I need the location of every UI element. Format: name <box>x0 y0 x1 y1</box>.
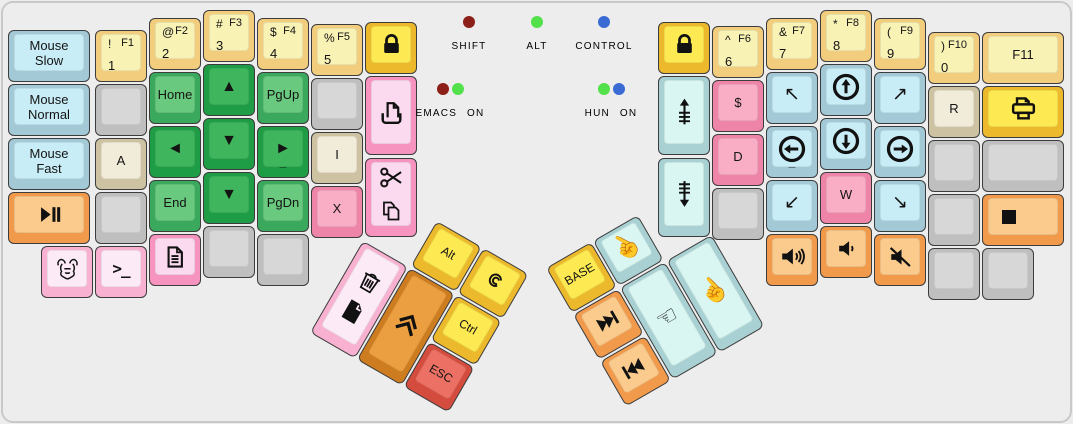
key-flabel: F7 <box>792 25 805 37</box>
chevrons-icon <box>387 303 428 345</box>
key-label: F11 <box>989 37 1057 72</box>
key-legend: ^ <box>725 33 731 47</box>
file-black-icon <box>334 293 371 330</box>
emacs-indicator: EMACS ON <box>380 83 520 119</box>
key-media-stop[interactable] <box>982 194 1064 246</box>
document-icon <box>161 243 189 271</box>
key-legend: ( <box>887 25 891 39</box>
key-d[interactable]: D <box>712 134 764 186</box>
key-icon-area <box>989 199 1057 234</box>
key-icon-area <box>827 231 865 266</box>
key-flabel: F3 <box>229 17 242 29</box>
key-mouse-up-left[interactable]: ↖ <box>766 72 818 124</box>
key-mouse-down-right[interactable]: ↘ <box>874 180 926 232</box>
key-mouse-slow[interactable]: Mouse Slow <box>8 30 90 82</box>
key-f10-0[interactable]: )F100 <box>928 32 980 84</box>
key-f1-1[interactable]: !F11 <box>95 30 147 82</box>
key-icon-area <box>827 123 865 158</box>
key-legend: 7 <box>779 46 786 61</box>
key-f11[interactable]: F11 <box>982 32 1064 84</box>
key-f7-7[interactable]: &F77 <box>766 18 818 70</box>
key-circle-left-key[interactable]: _ <box>766 126 818 178</box>
hand-up-icon: ☝ <box>609 231 645 263</box>
key-label: Home <box>156 77 194 112</box>
key-legend: % <box>324 31 335 45</box>
copy-icon <box>378 198 404 224</box>
key-pgdn[interactable]: PgDn <box>257 180 309 232</box>
key-volume-up[interactable] <box>766 234 818 286</box>
key-cut-copy[interactable] <box>365 158 417 237</box>
key-label: PgUp <box>264 77 302 112</box>
key-legend: & <box>779 25 787 39</box>
key-label: A <box>102 143 140 178</box>
key-label: ▼ <box>210 123 248 158</box>
hand-up-2-icon: ☝ <box>696 275 732 307</box>
key-blank[interactable] <box>95 84 147 136</box>
control-indicator: CONTROL <box>534 16 674 52</box>
keyboard-layout-canvas: Mouse SlowMouse NormalMouse Fast!F11A>_@… <box>0 0 1073 424</box>
key-print[interactable] <box>982 86 1064 138</box>
key-flabel: F6 <box>738 33 751 45</box>
key-i[interactable]: I <box>311 132 363 184</box>
key-label: W <box>827 177 865 212</box>
key-flabel: F8 <box>846 17 859 29</box>
key-mouse-fast[interactable]: Mouse Fast <box>8 138 90 190</box>
key-label: D <box>719 139 757 174</box>
led-dots <box>380 83 520 95</box>
skip-next-icon <box>590 305 624 338</box>
key-flabel: F9 <box>900 25 913 37</box>
key-icon-area <box>470 256 520 305</box>
key-legend: 8 <box>833 38 840 53</box>
key-flabel: F1 <box>121 37 134 49</box>
key-dollar[interactable]: $ <box>712 80 764 132</box>
key-label: Alt <box>423 229 473 278</box>
key-legend: 5 <box>324 52 331 67</box>
key-end[interactable]: End <box>149 180 201 232</box>
key-circle-down-key[interactable] <box>820 118 872 170</box>
circle-up-icon <box>831 72 861 102</box>
vol-mute-icon <box>886 243 914 271</box>
key-mouse-down-left[interactable]: ↙ <box>766 180 818 232</box>
gnu-icon <box>54 255 81 282</box>
green-led-dot <box>598 83 610 95</box>
key-legend: 4 <box>270 46 277 61</box>
blue-led-dot <box>613 83 625 95</box>
key-front-legend: _ <box>264 158 302 166</box>
key-volume-down[interactable] <box>820 226 872 278</box>
key-flabel: F2 <box>175 25 188 37</box>
key-flabel: F4 <box>283 25 296 37</box>
key-icon-area <box>156 239 194 274</box>
key-icon-area <box>881 239 919 274</box>
key-icon-area <box>881 131 919 166</box>
key-circle-right-key[interactable] <box>874 126 926 178</box>
key-flabel: F10 <box>948 39 967 51</box>
key-f5-5[interactable]: %F55 <box>311 24 363 76</box>
key-icon-area <box>773 239 811 274</box>
key-legend: 9 <box>887 46 894 61</box>
led-dots <box>541 83 681 95</box>
led-dots <box>534 16 674 28</box>
indicator-label: EMACS ON <box>380 108 520 119</box>
stop-icon <box>1002 210 1044 224</box>
key-legend: 6 <box>725 54 732 69</box>
key-blank[interactable] <box>928 194 980 246</box>
key-home[interactable]: Home <box>149 72 201 124</box>
circle-right-icon <box>885 134 915 164</box>
key-legend: ! <box>108 37 111 51</box>
key-label: Mouse Slow <box>15 35 83 70</box>
skip-prev-icon <box>617 351 651 384</box>
key-volume-mute[interactable] <box>874 234 926 286</box>
blue-led-dot <box>598 16 610 28</box>
key-blank[interactable] <box>928 140 980 192</box>
key-label: Mouse Fast <box>15 143 83 178</box>
key-legend: 2 <box>162 46 169 61</box>
key-label: End <box>156 185 194 220</box>
key-flabel: F5 <box>337 31 350 43</box>
hun-indicator: HUN ON <box>541 83 681 119</box>
key-blank[interactable] <box>712 188 764 240</box>
key-blank[interactable] <box>311 78 363 130</box>
trash-icon <box>351 263 388 300</box>
key-blank[interactable] <box>203 226 255 278</box>
key-arrow-up[interactable]: ▲ <box>203 64 255 116</box>
scroll-down-icon <box>674 179 695 208</box>
key-label: $ <box>719 85 757 120</box>
key-f2-2[interactable]: @F22 <box>149 18 201 70</box>
key-label: Ctrl <box>443 303 493 352</box>
key-label: ↘ <box>881 185 919 220</box>
key-scroll-down[interactable] <box>658 158 710 237</box>
key-a[interactable]: A <box>95 138 147 190</box>
key-label: I <box>318 137 356 172</box>
lock-icon <box>672 32 697 57</box>
key-legend: $ <box>270 25 277 39</box>
key-label: ↖ <box>773 77 811 112</box>
key-x[interactable]: X <box>311 186 363 238</box>
key-label: BASE <box>555 250 605 299</box>
key-blank[interactable] <box>257 234 309 286</box>
key-arrow-left[interactable]: ◄ <box>149 126 201 178</box>
key-icon-area <box>48 251 86 286</box>
key-front-legend: _ <box>773 158 811 166</box>
key-gnu[interactable] <box>41 246 93 298</box>
cut-icon <box>378 164 405 191</box>
key-terminal[interactable]: >_ <box>95 246 147 298</box>
key-f6-6[interactable]: ^F66 <box>712 26 764 78</box>
key-label: ↙ <box>773 185 811 220</box>
red-led-dot <box>437 83 449 95</box>
key-arrow-down-2[interactable]: ▼ <box>203 172 255 224</box>
terminal-icon: >_ <box>112 261 129 276</box>
key-legend: ) <box>941 39 945 53</box>
key-icon-area: ☝ <box>601 223 651 272</box>
key-label: ▲ <box>210 69 248 104</box>
key-label: PgDn <box>264 185 302 220</box>
key-legend: * <box>833 17 838 31</box>
key-f4-4[interactable]: $F44 <box>257 18 309 70</box>
key-label: ↗ <box>881 77 919 112</box>
key-circle-up-key[interactable] <box>820 64 872 116</box>
key-icon-area <box>665 163 703 225</box>
key-r[interactable]: R <box>928 86 980 138</box>
key-f3-3[interactable]: #F33 <box>203 10 255 62</box>
print-icon <box>1008 93 1039 124</box>
key-blank[interactable] <box>95 192 147 244</box>
key-legend: 3 <box>216 38 223 53</box>
key-legend: 0 <box>941 60 948 75</box>
key-icon-area <box>372 163 410 225</box>
key-document[interactable] <box>149 234 201 286</box>
key-legend: # <box>216 17 223 31</box>
key-blank[interactable] <box>982 140 1064 192</box>
key-blank[interactable] <box>982 248 1034 300</box>
vol-down-icon <box>833 235 860 262</box>
key-pgup[interactable]: PgUp <box>257 72 309 124</box>
key-icon-area: >_ <box>102 251 140 286</box>
key-icon-area <box>609 343 659 392</box>
key-w[interactable]: W <box>820 172 872 224</box>
vol-up-icon <box>778 242 807 271</box>
debian-icon <box>476 262 513 299</box>
key-icon-area <box>989 91 1057 126</box>
key-arrow-down[interactable]: ▼ <box>203 118 255 170</box>
key-arrow-right[interactable]: ►_ <box>257 126 309 178</box>
key-blank[interactable] <box>928 248 980 300</box>
indicator-label: HUN ON <box>541 108 681 119</box>
key-mouse-normal[interactable]: Mouse Normal <box>8 84 90 136</box>
key-icon-area <box>15 197 83 232</box>
key-f9-9[interactable]: (F99 <box>874 18 926 70</box>
key-label: X <box>318 191 356 226</box>
circle-down-icon <box>831 126 861 156</box>
key-label: ▼ <box>210 177 248 212</box>
key-label: Mouse Normal <box>15 89 83 124</box>
key-label: ◄ <box>156 131 194 166</box>
indicator-label: CONTROL <box>534 41 674 52</box>
key-icon-area <box>582 297 632 346</box>
play-pause-icon <box>36 201 63 228</box>
hand-left-icon: ☜ <box>653 304 682 332</box>
key-legend: 1 <box>108 58 115 73</box>
key-icon-area <box>827 69 865 104</box>
key-mouse-up-right[interactable]: ↗ <box>874 72 926 124</box>
key-legend: @ <box>162 25 174 39</box>
key-f8-8[interactable]: *F88 <box>820 10 872 62</box>
green-led-dot <box>452 83 464 95</box>
key-label: ESC <box>416 349 466 398</box>
key-play-pause[interactable] <box>8 192 90 244</box>
key-label: R <box>935 91 973 126</box>
